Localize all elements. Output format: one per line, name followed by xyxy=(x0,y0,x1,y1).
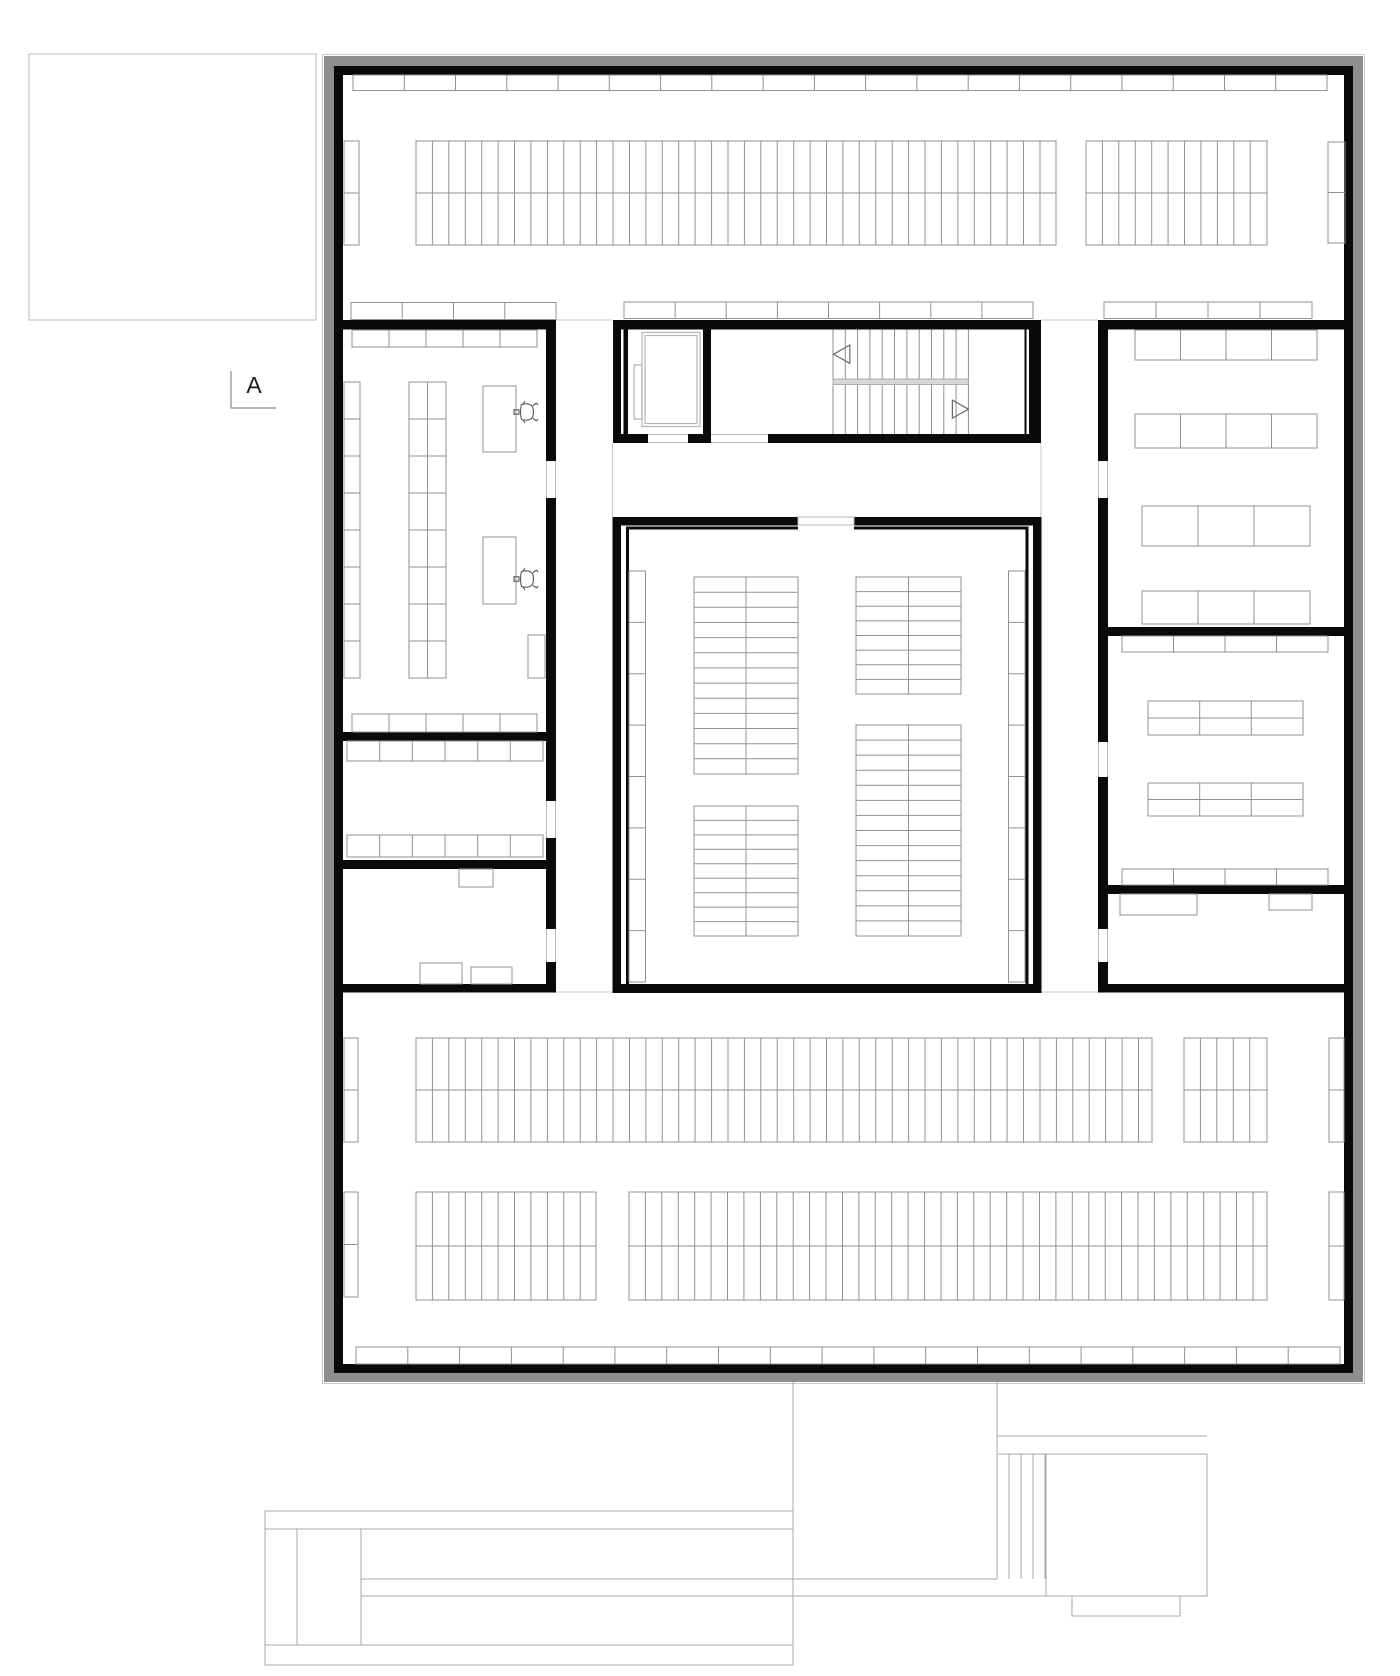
svg-text:A: A xyxy=(246,372,262,398)
